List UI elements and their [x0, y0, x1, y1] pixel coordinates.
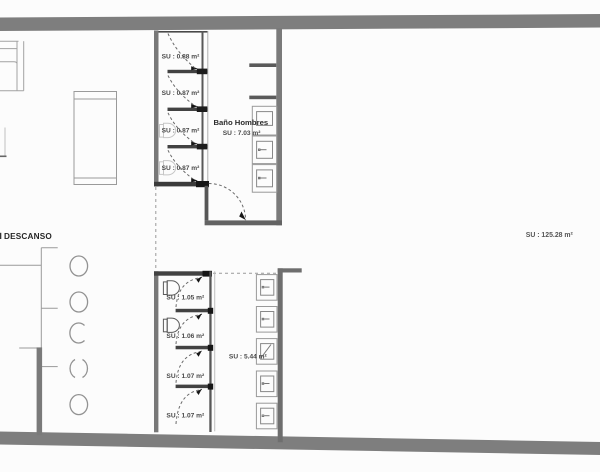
svg-text:SU : 5.44 m²: SU : 5.44 m²: [229, 353, 268, 360]
svg-text:SU : 125.28 m²: SU : 125.28 m²: [526, 232, 574, 239]
svg-text:SU : 0.88 m²: SU : 0.88 m²: [162, 53, 201, 60]
svg-text:SU : 7.03 m²: SU : 7.03 m²: [223, 130, 262, 137]
svg-text:DESCANSO: DESCANSO: [4, 232, 52, 241]
svg-text:SU : 0.87 m²: SU : 0.87 m²: [162, 128, 201, 135]
svg-text:SU : 1.05 m²: SU : 1.05 m²: [166, 294, 205, 301]
svg-text:SU : 0.87 m²: SU : 0.87 m²: [162, 90, 201, 97]
svg-text:SU : 1.07 m²: SU : 1.07 m²: [166, 373, 205, 380]
svg-text:SU : 1.06 m²: SU : 1.06 m²: [166, 333, 205, 340]
svg-text:Baño Hombres: Baño Hombres: [213, 118, 268, 127]
svg-text:SU : 1.07 m²: SU : 1.07 m²: [166, 413, 205, 420]
svg-text:SU : 0.87 m²: SU : 0.87 m²: [162, 165, 201, 172]
